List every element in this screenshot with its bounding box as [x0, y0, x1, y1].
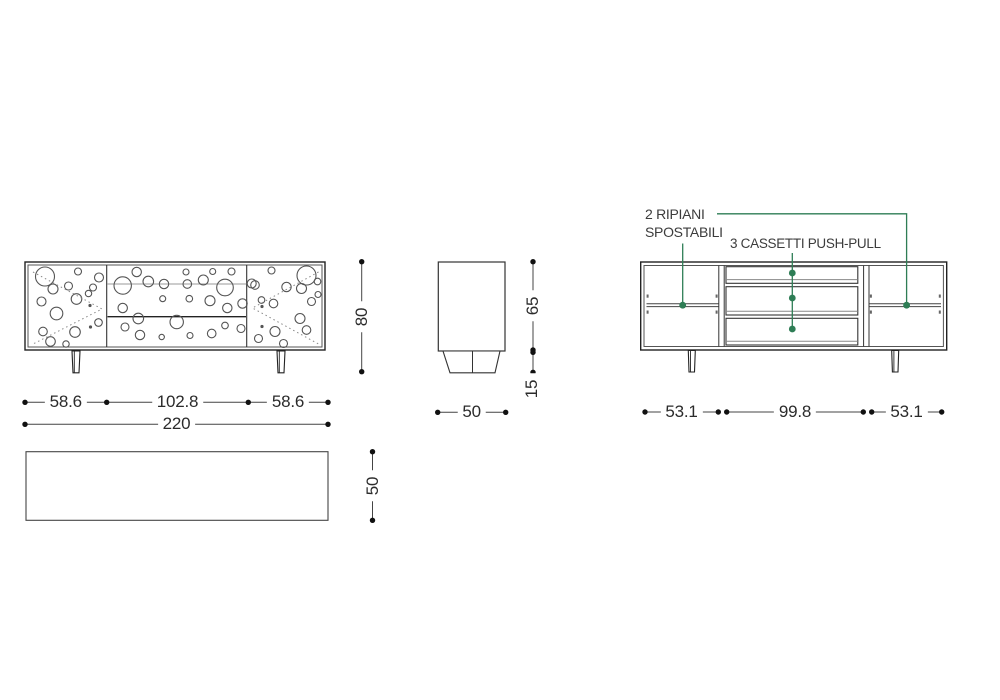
shelves-label-line1: 2 RIPIANI — [645, 206, 705, 224]
dim-interior-right-compartment: 53.1 — [885, 403, 927, 421]
drawers-label: 3 CASSETTI PUSH-PULL — [730, 236, 881, 253]
plan-outline — [26, 452, 328, 521]
dim-plan-depth: 50 — [364, 471, 382, 502]
dim-front-right-door-width: 58.6 — [267, 393, 309, 411]
dim-body-height: 65 — [524, 291, 542, 322]
dim-interior-center-compartment: 99.8 — [774, 403, 816, 421]
plan-view — [26, 452, 328, 521]
interior-legs — [688, 351, 898, 373]
dim-total-height: 80 — [353, 301, 371, 332]
dim-leg-height: 15 — [523, 374, 541, 405]
side-view — [438, 262, 505, 373]
dim-front-total-width: 220 — [158, 415, 196, 433]
interior-view — [641, 262, 947, 372]
dim-interior-left-compartment: 53.1 — [660, 403, 702, 421]
drawing-linework — [0, 0, 1000, 700]
front-legs — [72, 351, 285, 373]
technical-drawing-canvas: 58.6 102.8 58.6 220 80 65 15 50 50 53.1 … — [0, 0, 1000, 700]
side-body-outline — [438, 262, 505, 351]
dim-front-left-door-width: 58.6 — [45, 393, 87, 411]
front-view — [25, 262, 325, 373]
front-carcass-outline — [25, 262, 325, 350]
side-leg-outline — [443, 351, 500, 373]
dim-side-depth: 50 — [457, 403, 486, 421]
shelves-label-line2: SPOSTABILI — [645, 224, 723, 242]
dim-front-center-width: 102.8 — [152, 393, 204, 411]
